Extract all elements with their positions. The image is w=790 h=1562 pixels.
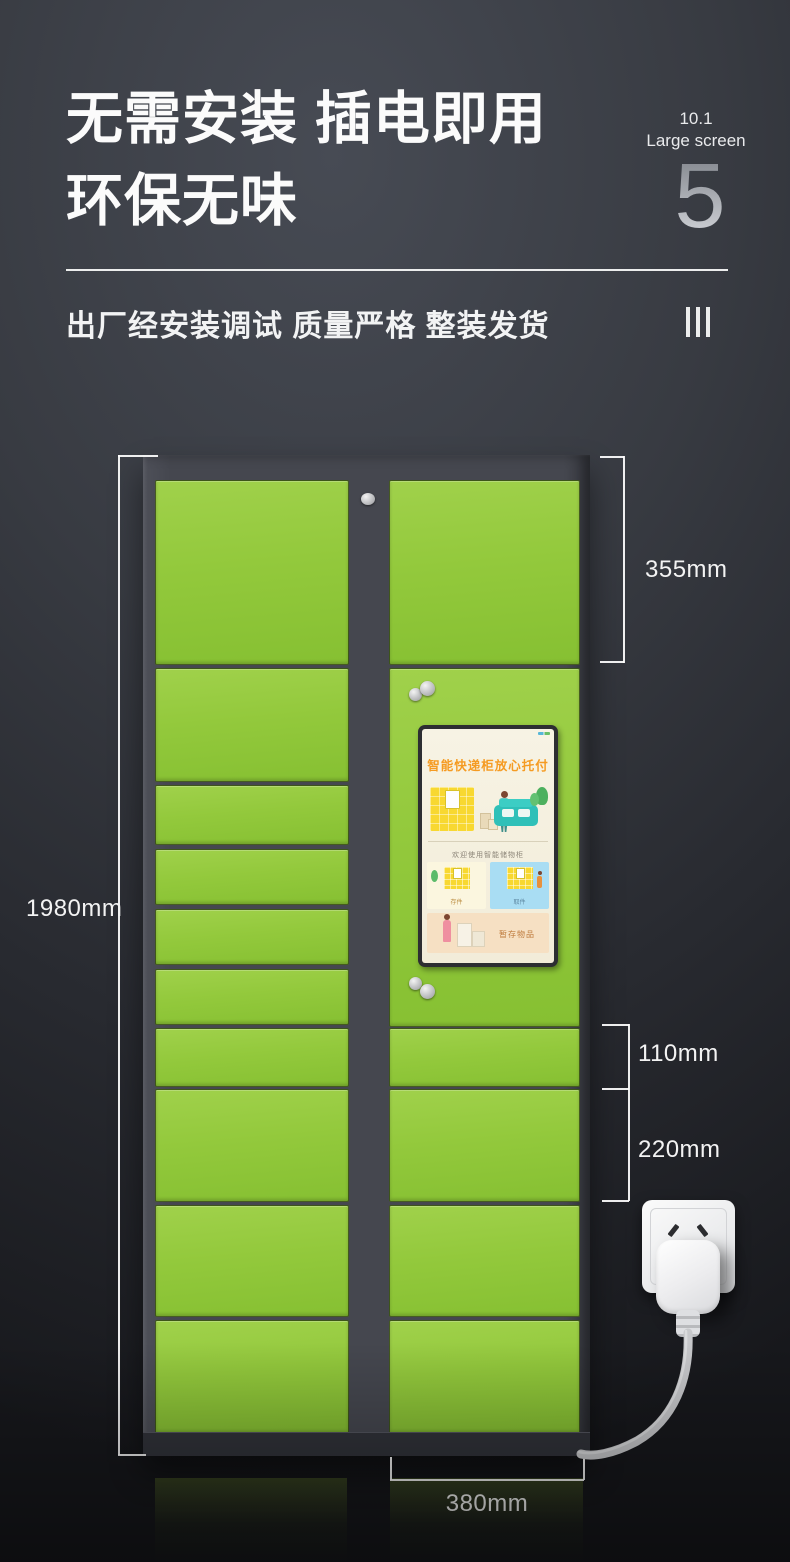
locker-door (155, 785, 349, 845)
parcel-locker-cabinet: 智能快递柜放心托付 欢迎使用智能储物柜 (143, 455, 590, 1455)
dimension-label-depth: 380mm (390, 1490, 584, 1518)
deposit-card-label: 存件 (427, 897, 486, 906)
dimension-tick (118, 1454, 146, 1456)
locker-door (155, 1320, 349, 1434)
dimension-tick (602, 1088, 629, 1090)
temp-storage-card[interactable]: 暂存物品 (427, 913, 549, 953)
power-cable (575, 1325, 790, 1475)
locker-door (155, 969, 349, 1025)
dimension-line-top-door (623, 456, 625, 663)
socket-slot-icon (668, 1224, 680, 1237)
kiosk-screen: 智能快递柜放心托付 欢迎使用智能储物柜 (418, 725, 558, 967)
temp-storage-label: 暂存物品 (499, 929, 535, 940)
keyhole-lock-icon (361, 493, 375, 505)
dimension-label-top-door: 355mm (645, 556, 728, 584)
locker-door (389, 480, 580, 665)
locker-door (389, 1320, 580, 1434)
page-title: 无需安装 插电即用 环保无味 (66, 78, 547, 242)
title-line-1: 无需安装 插电即用 (66, 78, 547, 160)
pickup-card-label: 取件 (490, 897, 549, 906)
dimension-line-small-doors (628, 1024, 630, 1201)
deposit-card[interactable]: 存件 (427, 862, 486, 909)
kiosk-title: 智能快递柜放心托付 (422, 755, 554, 774)
kiosk-hero-illustration (428, 779, 548, 847)
dimension-tick (602, 1024, 629, 1026)
title-line-2: 环保无味 (66, 160, 547, 242)
person-illustration (443, 920, 451, 942)
screen-status-icons (538, 732, 550, 735)
locker-door (155, 1028, 349, 1087)
locker-illustration (507, 867, 533, 889)
page-number: 5 (664, 148, 736, 244)
locker-door (155, 668, 349, 782)
locker-door (155, 1089, 349, 1202)
dimension-line-height (118, 455, 120, 1455)
locker-door (155, 909, 349, 965)
divider-line (66, 269, 728, 271)
subtitle: 出厂经安装调试 质量严格 整装发货 (66, 301, 550, 345)
screen-spec-size: 10.1 (636, 108, 756, 130)
dimension-label-medium-door: 220mm (638, 1136, 721, 1164)
floor-line (428, 841, 548, 842)
dimension-tick (600, 456, 624, 458)
power-plug (656, 1240, 720, 1314)
person-illustration (501, 791, 508, 798)
kiosk-screen-ui: 智能快递柜放心托付 欢迎使用智能储物柜 (422, 729, 554, 963)
floor-reflection (155, 1478, 347, 1562)
locker-door (389, 1205, 580, 1317)
dimension-label-small-door: 110mm (638, 1040, 719, 1068)
locker-door (389, 1028, 580, 1087)
kiosk-welcome-text: 欢迎使用智能储物柜 (422, 850, 554, 860)
door-handle-icon (420, 984, 435, 999)
locker-door (389, 1089, 580, 1202)
plant-illustration (536, 787, 548, 805)
product-page: 无需安装 插电即用 环保无味 10.1 Large screen 5 出厂经安装… (0, 0, 790, 1562)
pickup-card[interactable]: 取件 (490, 862, 549, 909)
dimension-tick (390, 1457, 392, 1480)
dimension-tick (600, 661, 624, 663)
locker-door (155, 849, 349, 905)
socket-slot-icon (697, 1224, 709, 1237)
parcel-box (472, 931, 485, 947)
locker-door (155, 480, 349, 665)
cabinet-base (143, 1432, 590, 1456)
locker-illustration (430, 787, 474, 831)
parcel-box (457, 923, 472, 947)
sofa-illustration (494, 805, 538, 826)
person-illustration (537, 876, 542, 888)
door-handle-icon (420, 681, 435, 696)
triple-bars-icon (686, 307, 710, 337)
locker-door (155, 1205, 349, 1317)
locker-illustration (444, 867, 470, 889)
dimension-line-depth (390, 1479, 584, 1481)
kiosk-action-cards: 存件 取件 (427, 862, 549, 909)
dimension-tick (602, 1200, 629, 1202)
plant-illustration (431, 870, 438, 882)
dimension-tick (118, 455, 158, 457)
dimension-label-height: 1980mm (26, 895, 122, 923)
